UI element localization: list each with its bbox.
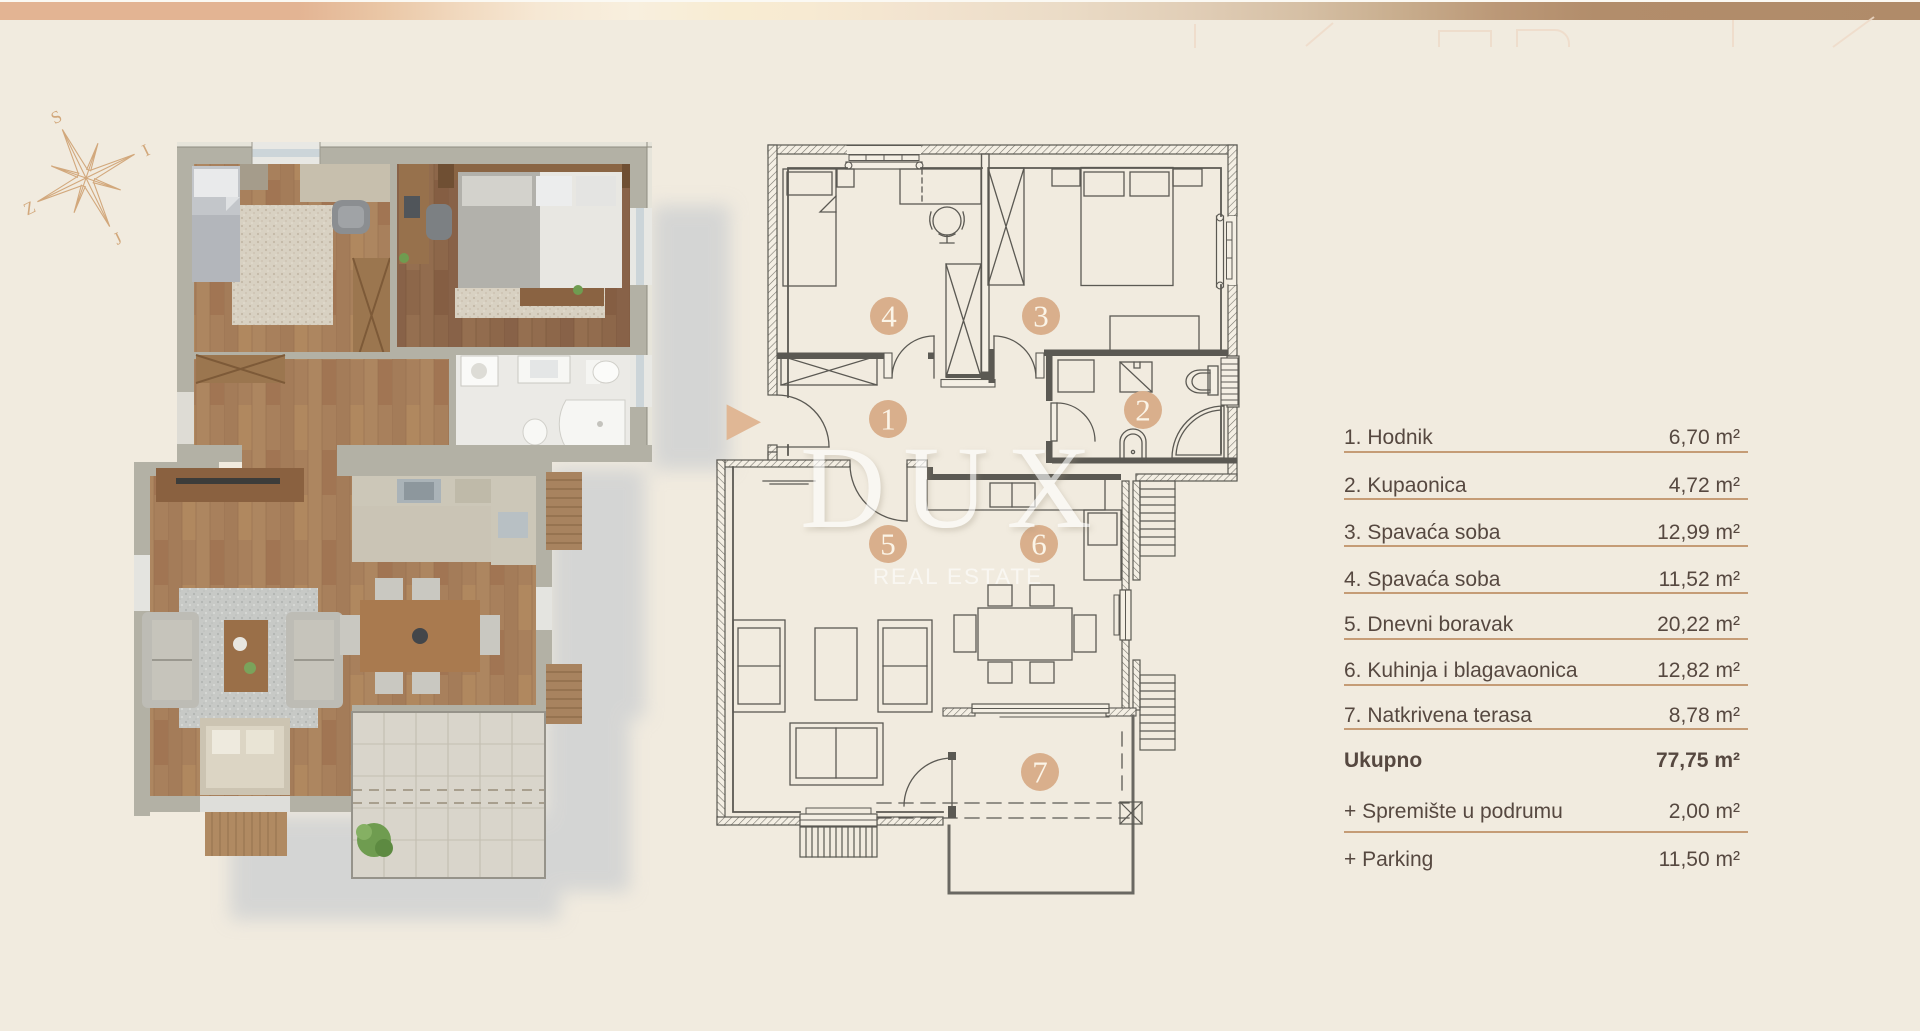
svg-text:4: 4 [881, 299, 897, 334]
svg-text:Z: Z [20, 197, 38, 220]
svg-text:REAL ESTATE: REAL ESTATE [873, 564, 1043, 589]
svg-text:I: I [139, 140, 153, 161]
svg-text:DUX: DUX [800, 422, 1110, 553]
svg-text:7: 7 [1032, 755, 1048, 790]
svg-text:J: J [110, 228, 125, 249]
svg-text:3: 3 [1033, 299, 1049, 334]
svg-text:2: 2 [1135, 393, 1151, 428]
svg-text:S: S [47, 106, 65, 128]
